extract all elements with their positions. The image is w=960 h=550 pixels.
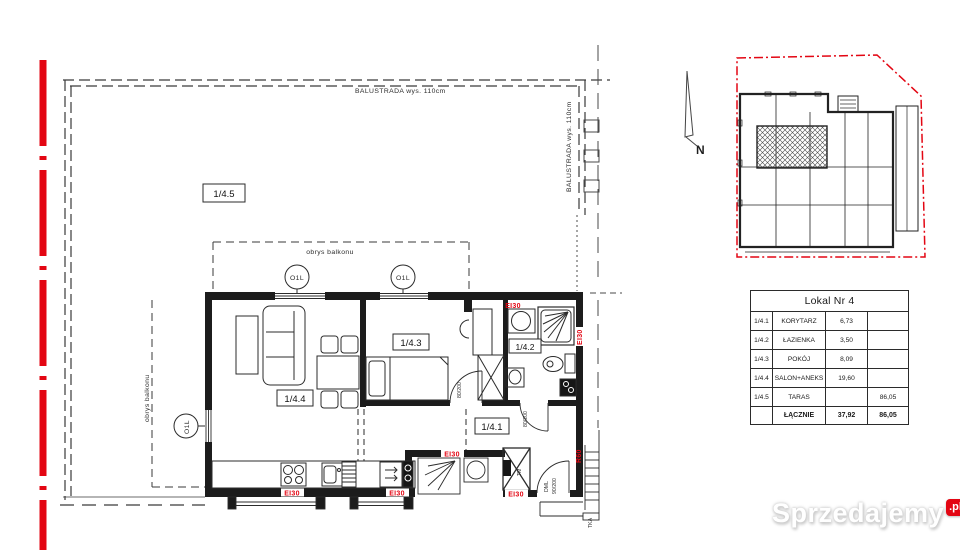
area-table: Lokal Nr 4 1/4.1 KORYTARZ 6,73 1/4.2 ŁAZ… [750,290,909,425]
bedroom-furniture [366,309,492,400]
floor-plan-drawing: BALUSTRADA wys. 110cm BALUSTRADA wys. 11… [0,0,960,550]
svg-text:EI30: EI30 [505,303,521,310]
svg-text:EI30: EI30 [508,492,524,499]
north-arrow: N [685,71,705,157]
entrance-door-size: 90/200 [552,478,558,494]
salon-label: 1/4.4 [277,390,313,406]
svg-text:EI30: EI30 [284,491,300,498]
site-building [738,92,918,252]
table-row: 1/4.2 ŁAZIENKA 3,50 [751,331,908,350]
balcony-outline-top-label: obrys balkonu [306,249,354,256]
bedroom-label: 1/4.3 [393,334,429,350]
entrance-door-type: DML [544,481,550,492]
svg-text:R60: R60 [576,449,583,463]
svg-text:1/4.3: 1/4.3 [400,338,421,349]
balcony-outline-left-label: obrys balkonu [144,374,151,422]
site-plan: N [685,55,925,257]
window-tag-2: O1L [396,275,410,282]
watermark: Sprzedajemy .pl [772,498,960,529]
svg-text:EI30: EI30 [577,329,584,345]
bathroom-door-size: 80/200 [523,411,529,427]
window-tag-1: O1L [290,275,304,282]
section-line [584,45,622,428]
terrace-label: 1/4.5 [203,184,245,202]
table-row: 1/4.5 TARAS 86,05 [751,388,908,407]
svg-text:1/4.4: 1/4.4 [284,394,305,405]
bathroom-label: 1/4.2 [509,339,541,353]
svg-text:EI30: EI30 [389,491,405,498]
table-footer-row: ŁĄCZNIE 37,92 86,05 [751,407,908,424]
apartment-walls [205,292,583,497]
table-row: 1/4.1 KORYTARZ 6,73 [751,312,908,331]
svg-text:1/4.5: 1/4.5 [213,189,234,200]
site-highlighted-unit [757,126,827,168]
table-row: 1/4.4 SALON+ANEKS 19,60 [751,369,908,388]
staircase-label: TKA [588,517,594,528]
svg-text:EI30: EI30 [444,452,460,459]
kitchen [212,409,466,488]
window-tag-3: O1L [184,420,191,434]
svg-text:1/4.1: 1/4.1 [481,422,502,433]
balustrade-right-label: BALUSTRADA wys. 110cm [566,101,573,192]
north-label: N [696,143,705,157]
shaft-label: TM [517,469,523,477]
corridor-label: 1/4.1 [475,418,509,434]
table-row: 1/4.3 POKÓJ 8,09 [751,350,908,369]
svg-text:1/4.2: 1/4.2 [516,342,535,352]
watermark-brand: Sprzedajemy [772,498,944,529]
watermark-pl-badge: .pl [946,499,960,516]
floor-plan-page: BALUSTRADA wys. 110cm BALUSTRADA wys. 11… [0,0,960,550]
area-table-title: Lokal Nr 4 [751,291,908,312]
balustrade-top-label: BALUSTRADA wys. 110cm [355,88,446,95]
bedroom-door-size: 80/200 [457,382,463,398]
